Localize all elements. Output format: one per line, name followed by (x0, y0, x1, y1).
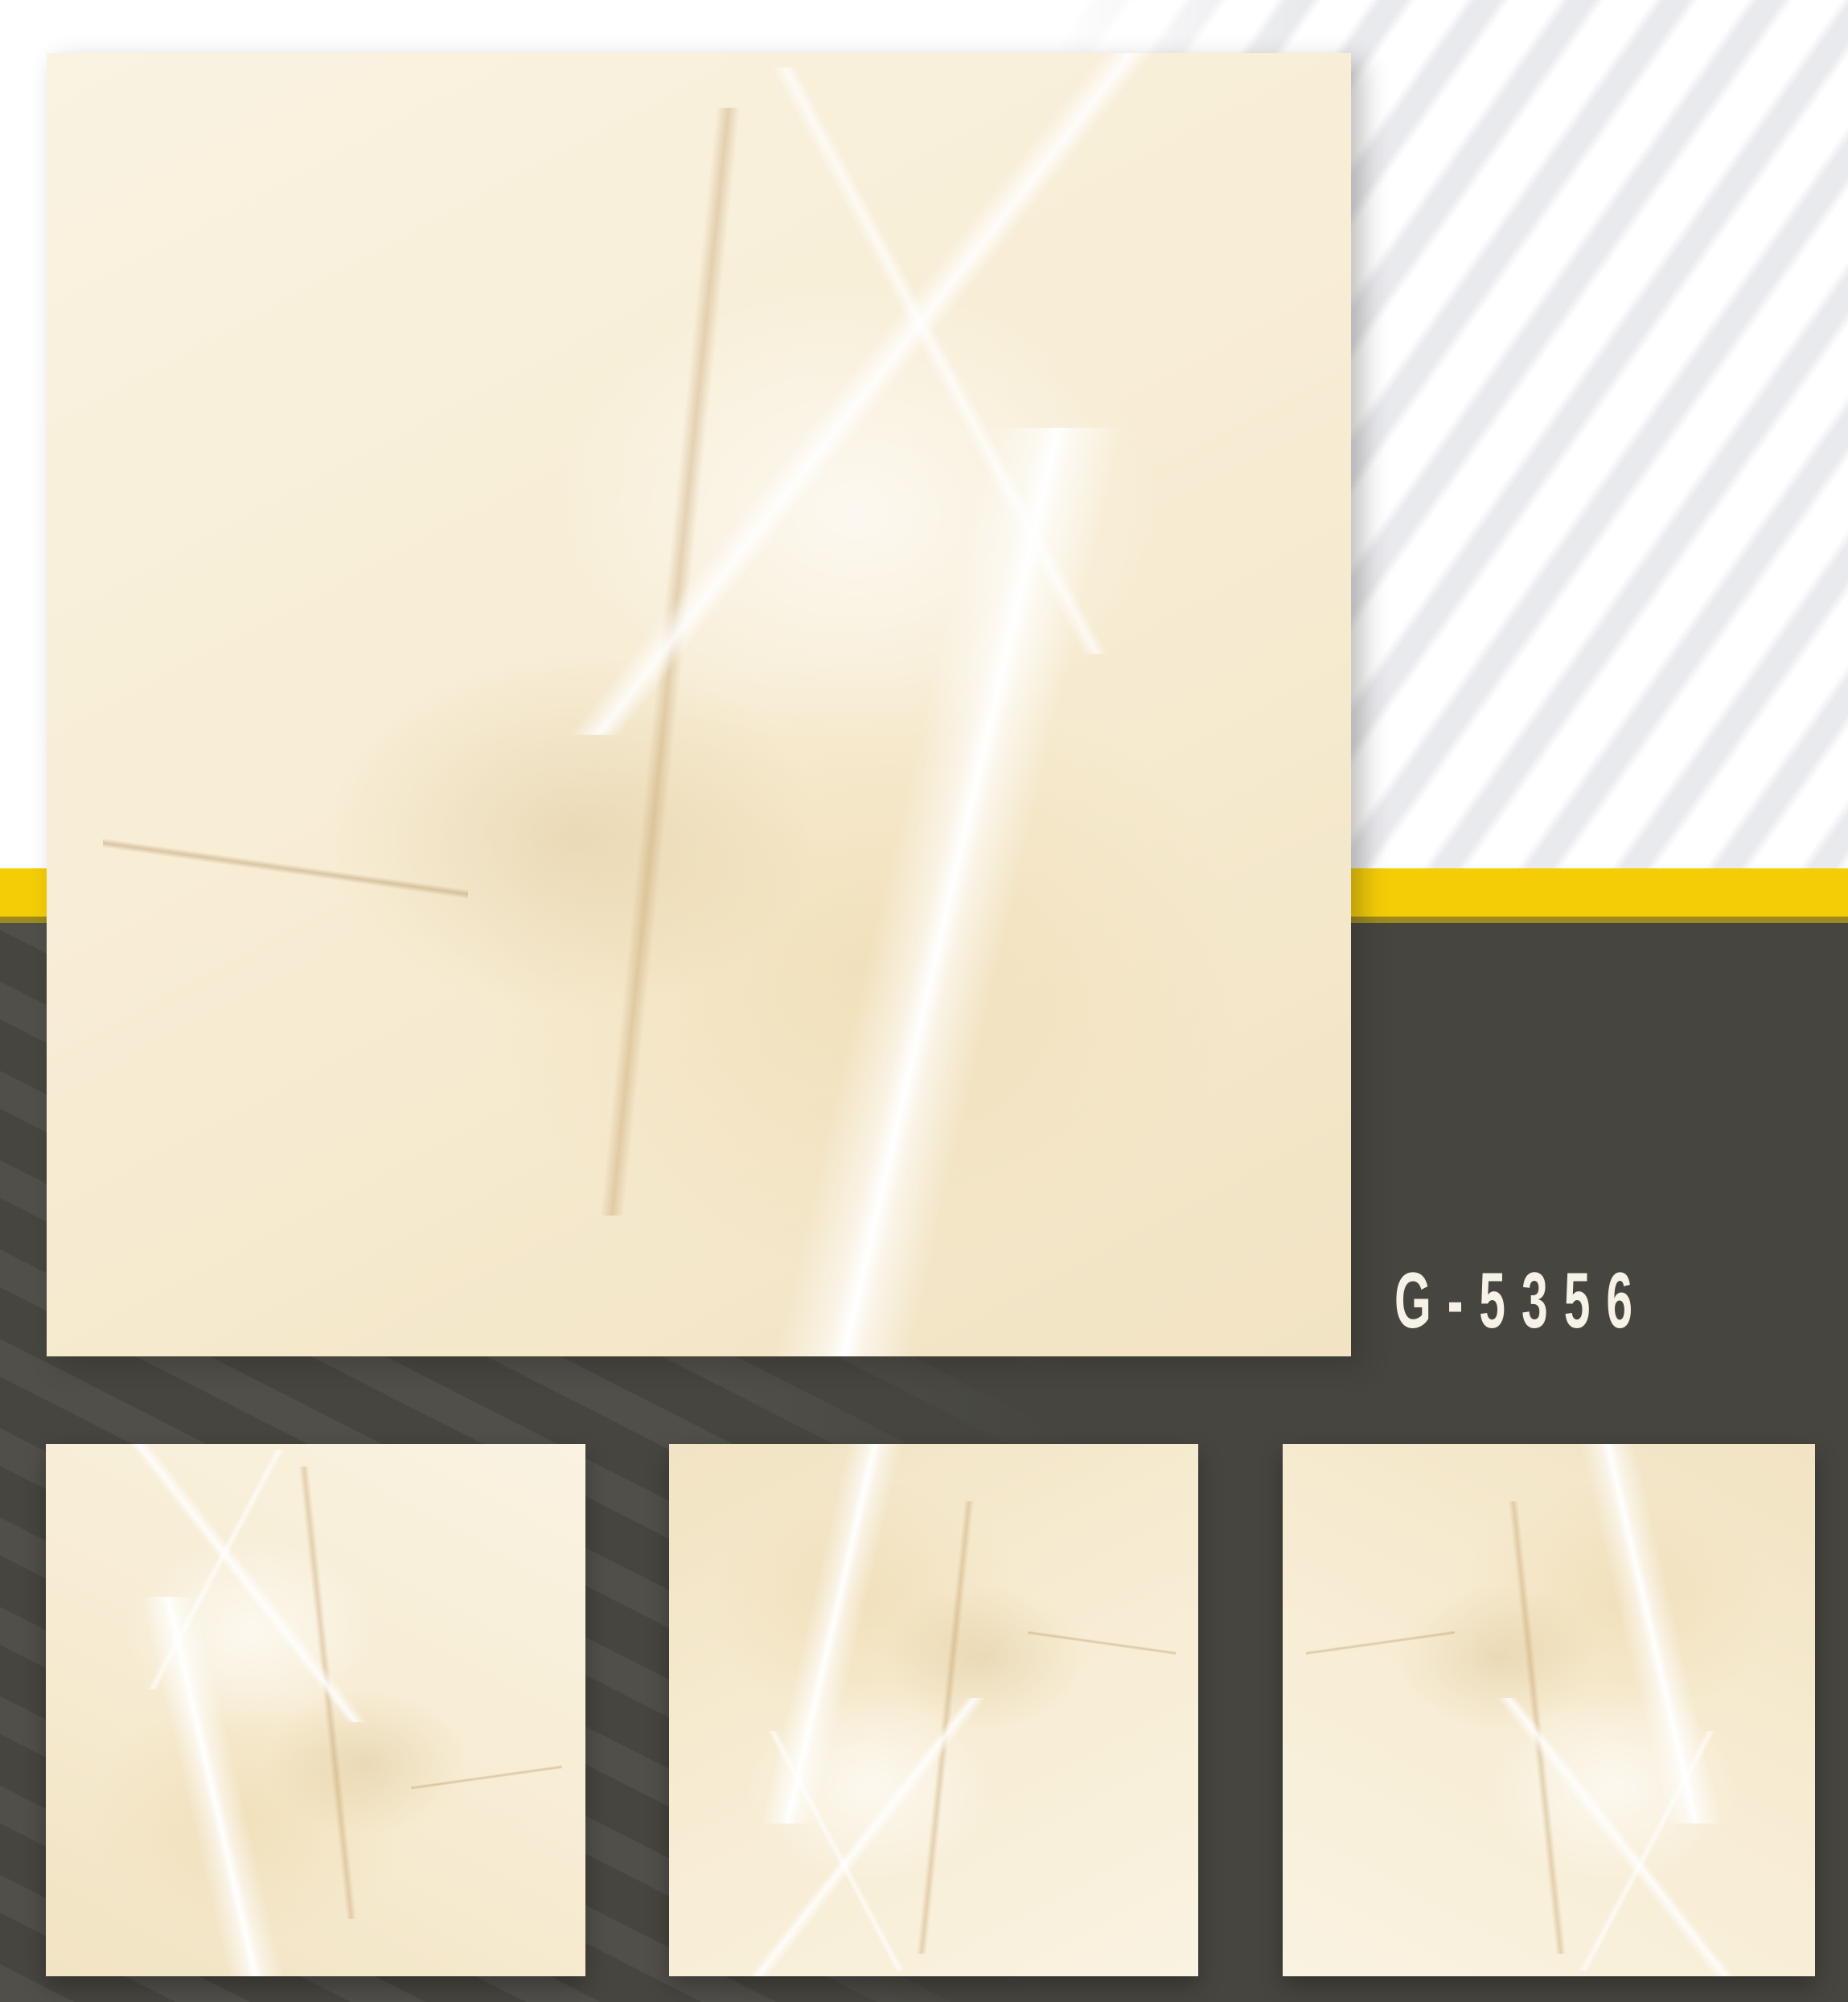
marble-tile-swatch-2 (669, 1444, 1198, 1976)
marble-texture (669, 1444, 1198, 1976)
catalog-page: G-5356 (0, 0, 1848, 2002)
marble-texture (46, 1444, 585, 1976)
large-marble-tile-swatch (47, 53, 1351, 1356)
marble-texture (47, 53, 1351, 1356)
marble-tile-swatch-3 (1283, 1444, 1815, 1976)
marble-tile-swatch-1 (46, 1444, 585, 1976)
marble-texture (1283, 1444, 1815, 1976)
product-code-label: G-5356 (1394, 1261, 1649, 1339)
